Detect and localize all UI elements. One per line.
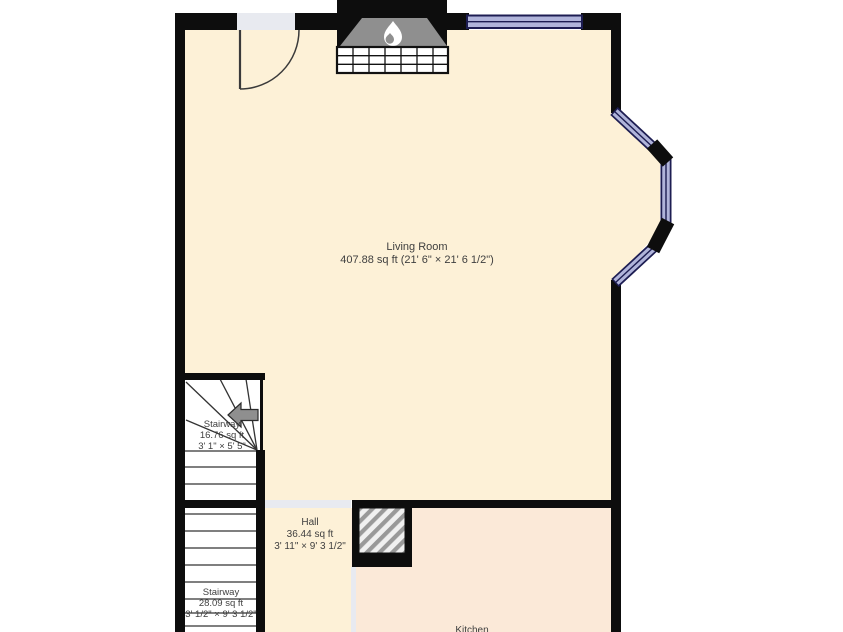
wall-stair-edge-lower — [256, 508, 265, 632]
chimney[interactable] — [352, 500, 412, 567]
window-top[interactable] — [467, 16, 582, 29]
fireplace[interactable] — [337, 0, 448, 73]
floor-plan-drawing — [0, 0, 843, 632]
wall-top-a — [175, 13, 237, 30]
wall-top-c — [445, 13, 469, 30]
wall-stair-mid — [175, 500, 265, 508]
stairway-upper-region[interactable] — [185, 379, 261, 500]
wall-top-b — [295, 13, 339, 30]
wall-right-upper — [611, 13, 621, 113]
wall-right-lower — [611, 280, 621, 632]
door-opening-threshold — [237, 13, 295, 30]
floor-plan-canvas: Living Room 407.88 sq ft (21' 6" × 21' 6… — [0, 0, 843, 632]
hall-region[interactable] — [265, 507, 351, 632]
wall-stair-edge — [256, 450, 265, 508]
chimney-hatch — [359, 508, 405, 553]
wall-stair-top — [175, 373, 265, 380]
hall-kitchen-threshold — [351, 567, 356, 632]
wall-stair-edge-thin — [260, 375, 263, 452]
hearth — [337, 47, 448, 73]
hall-living-threshold — [265, 500, 351, 508]
wall-left — [175, 13, 185, 632]
